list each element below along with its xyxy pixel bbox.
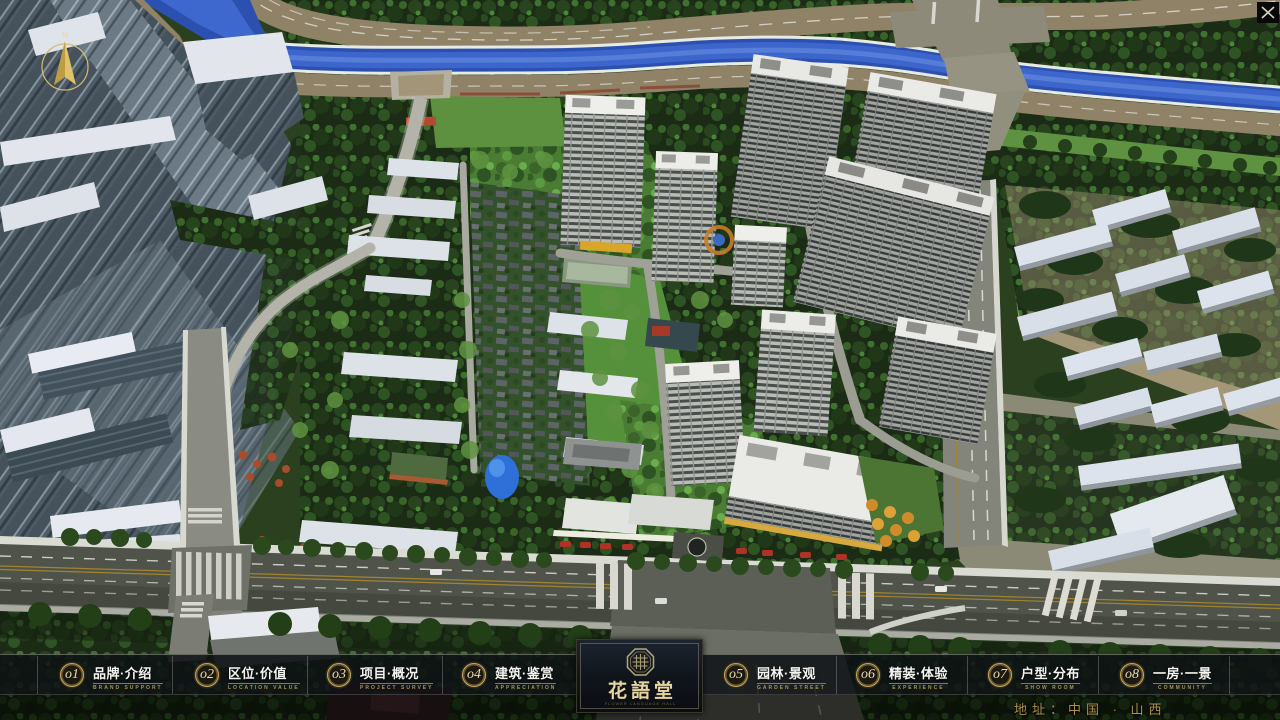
svg-text:N: N: [62, 31, 68, 40]
